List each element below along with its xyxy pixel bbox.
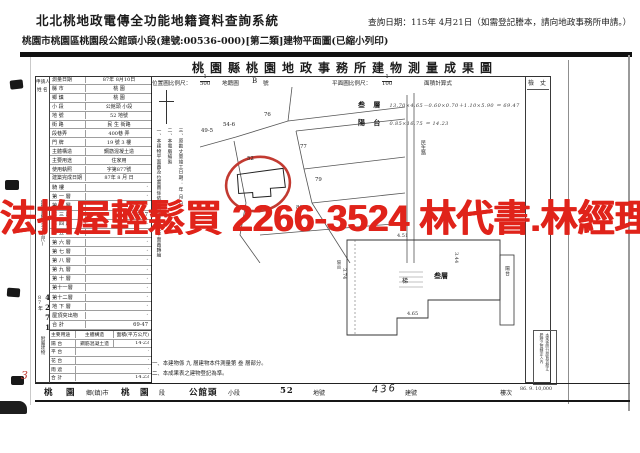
info-row: 小 段公館頭 小段	[50, 103, 152, 112]
info-row: 地 號52 地號	[50, 112, 152, 121]
svg-label: 77	[300, 144, 307, 150]
row-value: 字第877號	[86, 166, 152, 173]
row-label: 建築完成日期	[50, 174, 86, 181]
attached-row: 陽 台鋼筋混凝土造14·23	[50, 340, 152, 349]
row-label: 第 八 層	[50, 257, 86, 264]
row-label: 第 九 層	[50, 266, 86, 273]
stamp-box: 謄繪之管轄定入內本案係照分層負責勘丈	[533, 330, 557, 385]
check-column-label: 檢 丈	[527, 78, 549, 90]
row-label: 第十一層	[50, 284, 86, 291]
stamp-text-line: 謄繪之管轄定入內	[540, 333, 544, 384]
row-label: 縣 市	[50, 85, 86, 92]
row-value: ·	[86, 312, 152, 318]
footer-segment: 樓次	[500, 388, 512, 397]
floor-row: 地 下 層·	[50, 302, 152, 311]
formula-expression: 0.85×16.75 ＝ 14.23	[389, 121, 448, 127]
floor-row: 第十一層·	[50, 284, 152, 293]
attached-row: 合 計14.23	[50, 374, 152, 383]
info-row: 街 路民 生 街路	[50, 121, 152, 130]
stamp-text-line: 本案係照分層負責勘丈	[546, 333, 550, 384]
row-value: 19 號 3 樓	[86, 139, 152, 146]
row-value: 民 生 街路	[86, 121, 152, 128]
floor-plan: 4.514.653.443.74	[333, 230, 565, 342]
row-value: ·	[86, 184, 152, 190]
footer-segment: 公館頭	[189, 386, 218, 398]
attached-area: ·	[114, 367, 152, 372]
left-balcony-label: 陽台	[335, 260, 341, 269]
row-value: ·	[86, 257, 152, 263]
info-row: 測量日期87年 8月10日	[50, 76, 152, 85]
document-subtitle: 桃園市桃園區桃園段公館頭小段(建號:00536-000)[第二類]建物平面圖(已…	[22, 33, 388, 47]
bottom-note: 一、本建物係 九 層建物本件測量第 叁 層部分。	[152, 359, 267, 369]
row-label: 門 牌	[50, 139, 86, 146]
row-value: ·	[86, 285, 152, 291]
floor-row: 第 七 層·	[50, 247, 152, 256]
pen-mark: 3	[21, 369, 28, 382]
attached-use: 花 台	[50, 357, 76, 364]
form-top-border	[35, 76, 551, 77]
row-value: 52 地號	[86, 112, 152, 119]
area-formula: 叁 層13.70×4.65－0.60×0.70＋1.10×5.90 ＝ 69.4…	[358, 100, 520, 110]
north-indicator-crossbar	[159, 101, 174, 102]
attached-use: 雨 遮	[50, 366, 76, 373]
attached-row: 平 台·	[50, 348, 152, 357]
info-row: 鄉 鎮桃 園	[50, 94, 152, 103]
row-value: 住家用	[86, 157, 152, 164]
attached-table-rows: 陽 台鋼筋混凝土造14·23平 台·花 台·雨 遮·合 計14.23	[50, 340, 152, 383]
row-value: 公館頭 小段	[86, 103, 152, 110]
watermark-text: 法拍屋輕鬆買 2266-3524 林代書.林經理	[0, 196, 640, 242]
formula-name: 叁 層	[358, 100, 383, 109]
footer-segment: 鄉(鎮)市	[86, 388, 109, 397]
info-row: 主要用途住家用	[50, 156, 152, 165]
row-value: ·	[86, 303, 152, 309]
row-value: 桃 園	[86, 85, 152, 92]
row-label: 小 段	[50, 103, 86, 110]
registry-printout-page: 北北桃地政電傳全功能地籍資料查詢系統 查詢日期：115年 4月21日（如需登記謄…	[0, 0, 640, 453]
applicant-name-label: 姓 名	[37, 87, 48, 93]
attached-structures-table: 主要用途主體構造面積(平方公尺) 陽 台鋼筋混凝土造14·23平 台·花 台·雨…	[50, 330, 152, 383]
svg-label: 49-5	[201, 128, 214, 134]
floor-plan-outline	[347, 240, 500, 335]
row-label: 騎 樓	[50, 184, 86, 191]
attached-area: ·	[114, 358, 152, 363]
row-value: 400巷 弄	[86, 130, 152, 137]
footer-segment: 段	[159, 388, 165, 397]
attached-header-cell: 主要用途	[50, 331, 76, 338]
row-value: 69·47	[86, 322, 152, 328]
row-label: 使用執照	[50, 166, 86, 173]
punch-hole	[5, 180, 19, 190]
bottom-note: 二、本成果表之建物登記為準。	[152, 369, 267, 379]
attached-row: 雨 遮·	[50, 365, 152, 374]
svg-label: 3.74	[341, 268, 347, 279]
attached-header-cell: 主體構造	[76, 331, 114, 338]
attached-use: 平 台	[50, 348, 76, 355]
info-row: 建築完成日期87年 8 月 日	[50, 174, 152, 183]
floor-row: 第 八 層·	[50, 256, 152, 265]
area-formula: 陽 台0.85×16.75 ＝ 14.23	[358, 118, 520, 128]
floor-row: 第 九 層·	[50, 266, 152, 275]
attached-row: 花 台·	[50, 357, 152, 366]
floor-row: 第 十 層·	[50, 275, 152, 284]
info-row: 門 牌19 號 3 樓	[50, 138, 152, 147]
floor-row: 合 計69·47	[50, 321, 152, 330]
footer-segment: 桃	[121, 386, 131, 398]
applicant-label: 申請人	[36, 79, 50, 85]
row-label: 主體構造	[50, 148, 86, 155]
floor-row: 第十二層·	[50, 293, 152, 302]
punch-hole	[10, 79, 24, 89]
area-calculations: 叁 層13.70×4.65－0.60×0.70＋1.10×5.90 ＝ 69.4…	[358, 100, 520, 136]
svg-label: 79	[315, 177, 322, 183]
floor-row: 屋頂突出物·	[50, 311, 152, 320]
attached-side-label: 附屬建物	[39, 336, 45, 354]
row-label: 第 十 層	[50, 275, 86, 282]
svg-label: 52	[247, 156, 254, 162]
receipt-year: 87年	[36, 296, 43, 311]
attached-use: 合 計	[50, 374, 76, 381]
cadastral-sheet-number: B	[252, 77, 257, 85]
attached-structure: 鋼筋混凝土造	[76, 340, 114, 347]
row-value: ·	[86, 267, 152, 273]
balcony-label: 陽台	[503, 266, 510, 276]
row-label: 鄉 鎮	[50, 94, 86, 101]
row-label: 屋頂突出物	[50, 312, 86, 319]
footer-segment: 園	[140, 386, 150, 398]
attached-area: ·	[114, 349, 152, 354]
row-value: 87年 8月10日	[86, 76, 152, 83]
footer-segment: 建號	[405, 388, 417, 397]
row-value: 87年 8 月 日	[86, 174, 152, 181]
row-label: 街 路	[50, 121, 86, 128]
query-date: 查詢日期：115年 4月21日（如需登記謄本，請向地政事務所申請。）	[368, 16, 631, 28]
attached-area: 14·23	[114, 341, 152, 346]
north-indicator	[166, 90, 167, 124]
svg-label: 76	[264, 112, 271, 118]
footer-segment: 436	[372, 383, 398, 396]
stair-label: 梯	[402, 276, 408, 285]
formula-expression: 13.70×4.65－0.60×0.70＋1.10×5.90 ＝ 69.47	[389, 103, 519, 109]
row-label: 地 號	[50, 112, 86, 119]
row-label: 第十二層	[50, 294, 86, 301]
info-row: 主體構造鋼筋混凝土造	[50, 147, 152, 156]
bottom-notes: 一、本建物係 九 層建物本件測量第 叁 層部分。二、本成果表之建物登記為準。	[152, 359, 267, 380]
row-value: ·	[86, 294, 152, 300]
road-label: 民生路	[420, 140, 427, 155]
row-value: 桃 園	[86, 94, 152, 101]
footer-segment: 52	[280, 386, 294, 396]
info-row: 段巷弄400巷 弄	[50, 129, 152, 138]
row-label: 段巷弄	[50, 130, 86, 137]
footer-segment: 園	[66, 386, 76, 398]
row-label: 合 計	[50, 321, 86, 328]
location-scale-label: 位置圖比例尺：	[152, 79, 191, 87]
row-label: 地 下 層	[50, 303, 86, 310]
svg-label: 54-6	[223, 122, 236, 128]
system-title: 北北桃地政電傳全功能地籍資料查詢系統	[36, 10, 279, 29]
row-label: 第 七 層	[50, 248, 86, 255]
attached-use: 陽 台	[50, 340, 76, 347]
row-value: ·	[86, 276, 152, 282]
svg-label: 4.65	[407, 311, 418, 317]
attached-header-cell: 面積(平方公尺)	[114, 331, 152, 338]
floor-row: 騎 樓·	[50, 183, 152, 192]
footer-segment: 地號	[313, 388, 325, 397]
attached-table-header: 主要用途主體構造面積(平方公尺)	[50, 331, 152, 340]
footer-segment: 桃	[44, 386, 54, 398]
attached-area: 14.23	[114, 375, 152, 380]
info-row: 使用執照字第877號	[50, 165, 152, 174]
row-value: ·	[86, 248, 152, 254]
row-label: 測量日期	[50, 76, 86, 83]
svg-label: 3.44	[453, 252, 459, 263]
building-info-table: 測量日期87年 8月10日縣 市桃 園鄉 鎮桃 園小 段公館頭 小段地 號52 …	[50, 76, 152, 183]
row-value: 鋼筋混凝土造	[86, 148, 152, 155]
row-label: 主要用途	[50, 157, 86, 164]
room-label: 叁層	[434, 271, 448, 281]
document-title: 桃園縣桃園地政事務所建物測量成果圖	[150, 59, 540, 76]
info-row: 縣 市桃 園	[50, 85, 152, 94]
scan-top-edge	[20, 52, 632, 57]
formula-name: 陽 台	[358, 118, 383, 127]
scan-artifact	[0, 401, 27, 414]
punch-hole	[7, 288, 21, 298]
footer-segment: 小段	[228, 388, 240, 397]
